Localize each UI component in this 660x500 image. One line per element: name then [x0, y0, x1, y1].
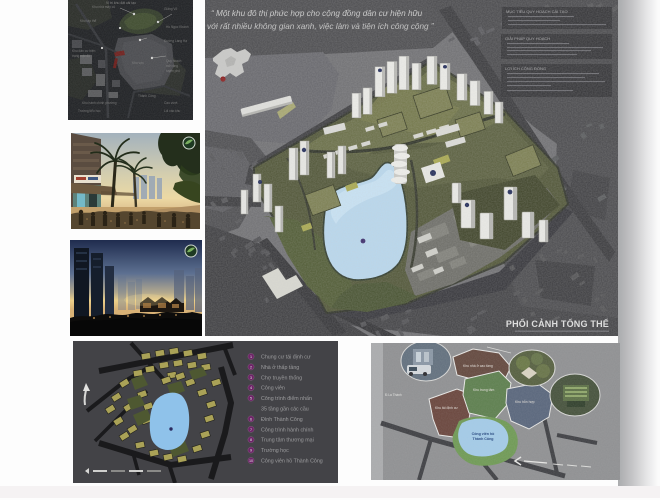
svg-text:Trường học: Trường học	[261, 448, 289, 454]
svg-text:Công trình hành chính: Công trình hành chính	[261, 427, 313, 433]
svg-text:1: 1	[250, 355, 252, 359]
svg-text:Công viên hồ Thành Công: Công viên hồ Thành Công	[261, 459, 323, 465]
svg-text:35 tầng gần các cầu: 35 tầng gần các cầu	[261, 407, 309, 413]
svg-text:3: 3	[250, 376, 252, 380]
svg-text:Công viên: Công viên	[261, 386, 285, 392]
svg-text:8: 8	[250, 438, 252, 442]
svg-text:Vị trí khu đất cải tạo: Vị trí khu đất cải tạo	[106, 1, 136, 5]
svg-text:2: 2	[250, 365, 252, 369]
svg-text:Nhà ở thấp tầng: Nhà ở thấp tầng	[261, 364, 299, 371]
svg-text:7: 7	[250, 428, 252, 432]
svg-text:6: 6	[250, 417, 252, 421]
svg-text:Chung cư tái định cư: Chung cư tái định cư	[261, 355, 311, 361]
svg-text:Trung tâm thương mại: Trung tâm thương mại	[261, 438, 314, 444]
svg-text:10: 10	[249, 459, 253, 463]
svg-text:5: 5	[250, 397, 252, 401]
svg-text:Công trình điểm nhấn: Công trình điểm nhấn	[261, 395, 312, 402]
svg-text:Đình Thành Công: Đình Thành Công	[261, 417, 303, 423]
svg-text:Chợ truyền thống: Chợ truyền thống	[261, 375, 302, 381]
svg-text:9: 9	[250, 449, 252, 453]
svg-text:4: 4	[250, 386, 252, 390]
